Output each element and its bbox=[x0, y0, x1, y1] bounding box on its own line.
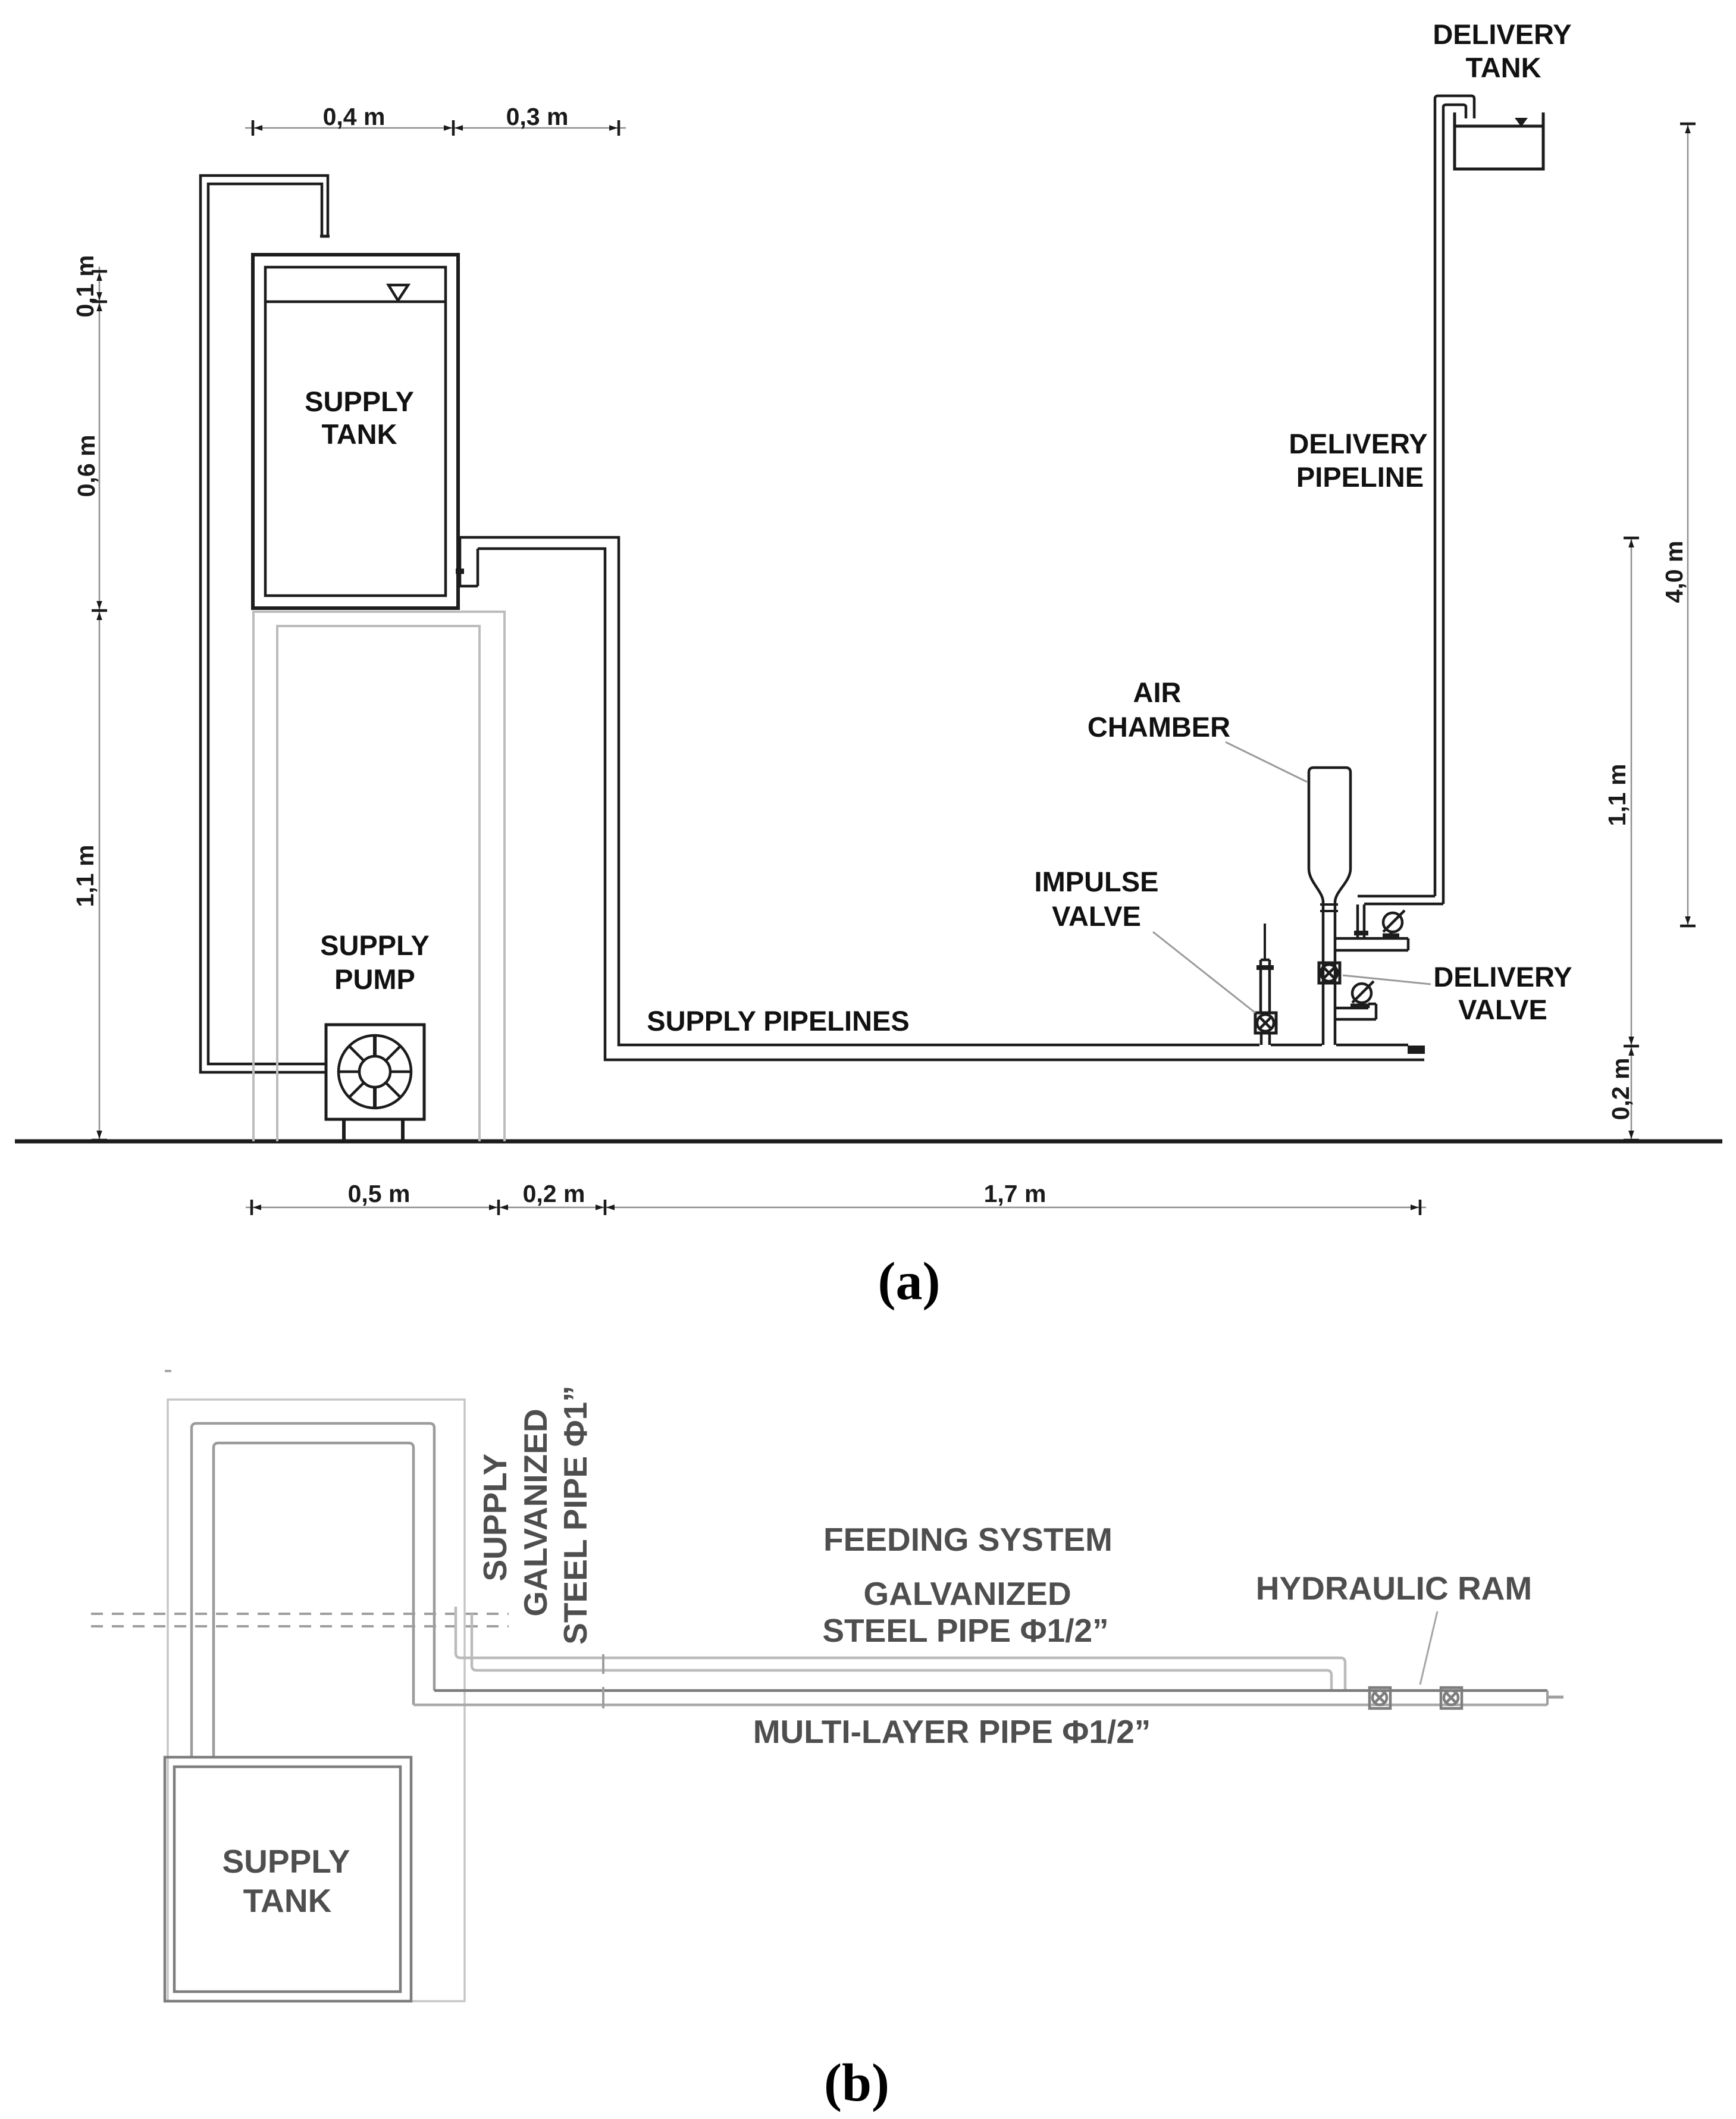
svg-text:GALVANIZED: GALVANIZED bbox=[517, 1409, 554, 1616]
svg-text:0,5 m: 0,5 m bbox=[348, 1180, 411, 1207]
svg-text:DELIVERY: DELIVERY bbox=[1433, 961, 1572, 993]
svg-text:(a): (a) bbox=[878, 1252, 941, 1311]
svg-text:TANK: TANK bbox=[1465, 52, 1541, 83]
svg-text:VALVE: VALVE bbox=[1052, 900, 1141, 932]
svg-text:SUPPLY: SUPPLY bbox=[305, 386, 414, 417]
svg-text:1,7 m: 1,7 m bbox=[984, 1180, 1046, 1207]
svg-text:SUPPLY: SUPPLY bbox=[477, 1453, 513, 1581]
svg-text:VALVE: VALVE bbox=[1458, 994, 1547, 1025]
svg-text:(b): (b) bbox=[824, 2054, 889, 2112]
svg-text:CHAMBER: CHAMBER bbox=[1088, 711, 1230, 743]
svg-text:0,3 m: 0,3 m bbox=[506, 103, 569, 130]
svg-text:0,2 m: 0,2 m bbox=[523, 1180, 585, 1207]
svg-text:SUPPLY: SUPPLY bbox=[222, 1843, 350, 1880]
svg-text:AIR: AIR bbox=[1133, 677, 1182, 708]
svg-text:SUPPLY: SUPPLY bbox=[320, 929, 430, 961]
svg-text:0,6 m: 0,6 m bbox=[73, 435, 100, 497]
svg-text:FEEDING SYSTEM: FEEDING SYSTEM bbox=[823, 1521, 1113, 1558]
svg-text:1,1 m: 1,1 m bbox=[71, 845, 99, 907]
svg-text:GALVANIZED: GALVANIZED bbox=[863, 1575, 1071, 1612]
svg-text:TANK: TANK bbox=[243, 1882, 332, 1919]
svg-text:DELIVERY: DELIVERY bbox=[1289, 428, 1427, 459]
svg-text:STEEL PIPE Φ1/2”: STEEL PIPE Φ1/2” bbox=[822, 1612, 1108, 1649]
svg-text:0,2 m: 0,2 m bbox=[1607, 1058, 1634, 1120]
svg-text:STEEL PIPE Φ1”: STEEL PIPE Φ1” bbox=[557, 1385, 594, 1644]
svg-text:HYDRAULIC RAM: HYDRAULIC RAM bbox=[1256, 1570, 1532, 1607]
svg-text:MULTI-LAYER PIPE Φ1/2”: MULTI-LAYER PIPE Φ1/2” bbox=[753, 1713, 1151, 1750]
svg-text:TANK: TANK bbox=[321, 418, 397, 450]
svg-text:1,1 m: 1,1 m bbox=[1603, 764, 1631, 827]
svg-text:4,0 m: 4,0 m bbox=[1660, 541, 1688, 603]
svg-text:SUPPLY PIPELINES: SUPPLY PIPELINES bbox=[647, 1005, 909, 1037]
svg-text:DELIVERY: DELIVERY bbox=[1433, 18, 1571, 50]
svg-text:PUMP: PUMP bbox=[334, 963, 415, 995]
svg-text:0,1 m: 0,1 m bbox=[71, 255, 99, 318]
svg-text:PIPELINE: PIPELINE bbox=[1296, 461, 1424, 493]
svg-text:0,4 m: 0,4 m bbox=[323, 103, 386, 130]
svg-text:IMPULSE: IMPULSE bbox=[1035, 866, 1159, 897]
